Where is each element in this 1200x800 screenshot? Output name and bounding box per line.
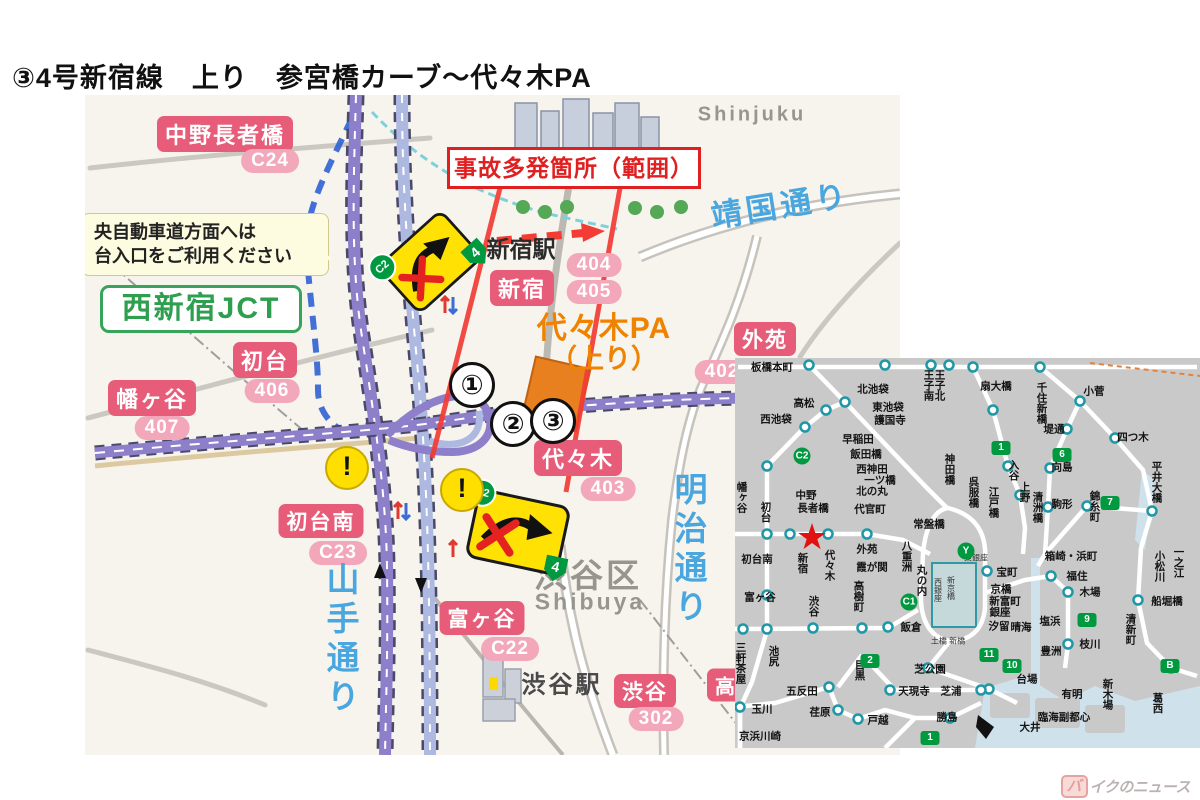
inset-station-北池袋: 北池袋	[857, 384, 889, 395]
inset-station-錦糸町: 錦糸町	[1088, 490, 1099, 522]
inset-route-badge-11: 11	[980, 648, 999, 662]
inset-station-江戸橋: 江戸橋	[987, 486, 998, 518]
route-note-callout: 央自動車道方面へは 台入口をご利用ください	[85, 213, 329, 276]
inset-station-芝浦: 芝浦	[941, 686, 962, 697]
map-label-新宿: 新宿	[490, 270, 554, 306]
map-label-403: 403	[581, 477, 636, 501]
inset-station-外苑: 外苑	[857, 544, 878, 555]
inset-station-五反田: 五反田	[786, 686, 818, 697]
inset-station-塩浜: 塩浜	[1040, 616, 1061, 627]
inset-station-高松: 高松	[794, 398, 815, 409]
inset-station-葛西: 葛西	[1151, 693, 1162, 714]
map-label-405: 405	[567, 280, 622, 304]
map-label-初台: 初台	[233, 342, 297, 378]
warning-exclamation-icon: !	[325, 446, 369, 490]
map-label-C24: C24	[241, 149, 299, 173]
inset-route-badge-2: 2	[861, 654, 880, 668]
inset-station-王子南: 王子南	[922, 369, 933, 401]
map-label-新宿駅: 新宿駅	[487, 230, 556, 264]
map-label-明治通り: 明治通り	[664, 472, 712, 628]
inset-station-宝町: 宝町	[997, 567, 1018, 578]
inset-station-護国寺: 護国寺	[874, 415, 906, 426]
map-label-406: 406	[245, 379, 300, 403]
map-label-山手通り: 山手通り	[316, 562, 364, 718]
map-label-Shibuya: Shibuya	[535, 589, 645, 616]
inset-station-有明: 有明	[1062, 689, 1083, 700]
inset-station-初台: 初台	[759, 502, 770, 523]
inset-station-八重洲: 八重洲	[900, 540, 911, 572]
inset-station-箱崎・浜町: 箱崎・浜町	[1045, 551, 1098, 562]
inset-station-小松川: 小松川	[1153, 550, 1164, 582]
inset-route-badge-B: B	[1161, 659, 1180, 673]
watermark-text: イクのニュース	[1090, 776, 1190, 797]
inset-station-早稲田: 早稲田	[842, 434, 874, 445]
location-star-icon: ★	[796, 519, 828, 555]
inset-station-北の丸: 北の丸	[856, 486, 888, 497]
inset-station-飯倉: 飯倉	[901, 622, 922, 633]
pa-label-line1: 代々木PA	[518, 313, 690, 345]
inset-route-badge-9: 9	[1078, 613, 1097, 627]
inset-route-badge-1: 1	[921, 731, 940, 745]
map-label-幡ヶ谷: 幡ヶ谷	[108, 380, 196, 416]
inset-station-天現寺: 天現寺	[898, 686, 930, 697]
inset-station-木場: 木場	[1080, 587, 1101, 598]
inset-station-池尻: 池尻	[767, 646, 778, 667]
inset-station-汐留: 汐留	[989, 621, 1010, 632]
inset-station-戸越: 戸越	[868, 715, 889, 726]
inset-route-badge-Y: Y	[958, 543, 975, 560]
inset-minor-新京橋: 新京橋	[946, 576, 957, 600]
inset-network-map: 板橋本町北池袋東池袋護国寺高松西池袋早稲田飯田橋西神田一ツ橋北の丸代官町常盤橋八…	[735, 358, 1200, 748]
inset-station-扇大橋: 扇大橋	[980, 381, 1012, 392]
circled-marker-①: ①	[449, 362, 495, 408]
map-label-302: 302	[629, 707, 684, 731]
inset-station-京浜川崎: 京浜川崎	[739, 731, 781, 742]
inset-station-駒形: 駒形	[1052, 499, 1073, 510]
inset-station-台場: 台場	[1017, 674, 1038, 685]
building-window	[489, 677, 498, 690]
inset-minor-土橋 新橋: 土橋 新橋	[931, 636, 965, 647]
inset-route-badge-7: 7	[1101, 496, 1120, 510]
map-label-外苑: 外苑	[734, 322, 796, 356]
inset-station-四つ木: 四つ木	[1117, 432, 1149, 443]
inset-route-badge-1: 1	[992, 441, 1011, 455]
inset-station-西池袋: 西池袋	[760, 414, 792, 425]
page: ③4号新宿線 上り 参宮橋カーブ～代々木PA	[0, 0, 1200, 800]
map-label-Shinjuku: Shinjuku	[698, 104, 806, 127]
inset-station-銀座: 銀座	[990, 607, 1011, 618]
inset-route-badge-10: 10	[1003, 659, 1022, 673]
inset-route-badge-C2: C2	[794, 448, 811, 465]
watermark-badge: バ	[1061, 775, 1088, 798]
inset-station-平井大橋: 平井大橋	[1150, 461, 1161, 503]
map-label-渋谷: 渋谷	[614, 674, 676, 708]
nishi-shinjuku-jct-label: 西新宿JCT	[100, 285, 302, 333]
circled-marker-②: ②	[490, 401, 536, 447]
inset-station-清洲橋: 清洲橋	[1031, 491, 1042, 523]
inset-station-大井: 大井	[1020, 722, 1041, 733]
inset-station-板橋本町: 板橋本町	[751, 362, 793, 373]
map-label-初台南: 初台南	[279, 504, 364, 538]
map-label-404: 404	[567, 253, 622, 277]
inset-station-臨海副都心: 臨海副都心	[1038, 712, 1091, 723]
inset-station-入谷: 入谷	[1007, 460, 1018, 481]
map-label-富ヶ谷: 富ヶ谷	[440, 601, 525, 635]
site-watermark: バ イクのニュース	[1061, 775, 1190, 798]
inset-station-飯田橋: 飯田橋	[850, 449, 882, 460]
inset-station-船堀橋: 船堀橋	[1151, 596, 1183, 607]
inset-station-一之江: 一之江	[1172, 546, 1183, 578]
inset-station-枝川: 枝川	[1080, 639, 1101, 650]
inset-route-badge-C1: C1	[901, 594, 918, 611]
inset-station-王子北: 王子北	[933, 369, 944, 401]
inset-station-勝島: 勝島	[937, 712, 958, 723]
inset-station-荏原: 荏原	[810, 707, 831, 718]
inset-station-代官町: 代官町	[854, 504, 886, 515]
inset-station-向島: 向島	[1052, 462, 1073, 473]
inset-station-三軒茶屋: 三軒茶屋	[735, 642, 746, 684]
hazard-zone-label: 事故多発箇所（範囲）	[447, 147, 701, 189]
inset-station-中野: 中野	[796, 490, 817, 501]
note-line-1: 央自動車道方面へは	[94, 220, 320, 244]
map-label-C22: C22	[481, 637, 539, 661]
inset-station-晴海: 晴海	[1011, 622, 1032, 633]
inset-station-常盤橋: 常盤橋	[913, 519, 945, 530]
inset-station-玉川: 玉川	[752, 704, 773, 715]
inset-station-富ヶ谷: 富ヶ谷	[744, 592, 776, 603]
inset-station-千住新橋: 千住新橋	[1035, 382, 1046, 424]
inset-station-渋谷: 渋谷	[807, 596, 818, 617]
pa-label-line2: （上り）	[518, 345, 690, 373]
inset-station-上野: 上野	[1018, 482, 1029, 503]
map-label-渋谷駅: 渋谷駅	[522, 665, 603, 700]
map-label-中野長者橋: 中野長者橋	[157, 116, 293, 152]
inset-station-堤通: 堤通	[1044, 424, 1065, 435]
page-title: ③4号新宿線 上り 参宮橋カーブ～代々木PA	[12, 56, 592, 95]
inset-station-神田橋: 神田橋	[943, 453, 954, 485]
inset-station-霞が関: 霞が関	[856, 562, 888, 573]
circled-marker-③: ③	[530, 398, 576, 444]
inset-minor-西銀座: 西銀座	[933, 578, 944, 602]
inset-station-豊洲: 豊洲	[1041, 646, 1062, 657]
inset-station-清新町: 清新町	[1124, 613, 1135, 645]
inset-station-新木場: 新木場	[1101, 678, 1112, 710]
inset-station-長者橋: 長者橋	[797, 503, 829, 514]
inset-station-芝公園: 芝公園	[914, 664, 946, 675]
inset-route-badge-6: 6	[1053, 448, 1072, 462]
inset-station-福住: 福住	[1067, 571, 1088, 582]
inset-station-丸の内: 丸の内	[915, 564, 926, 596]
inset-station-小菅: 小菅	[1084, 386, 1105, 397]
yoyogi-pa-label: 代々木PA （上り）	[518, 313, 690, 373]
inset-station-呉服橋: 呉服橋	[967, 476, 978, 508]
inset-station-初台南: 初台南	[741, 554, 773, 565]
note-line-2: 台入口をご利用ください	[94, 244, 320, 268]
inset-station-幡ヶ谷: 幡ヶ谷	[735, 481, 746, 513]
map-label-代々木: 代々木	[534, 440, 622, 476]
inset-station-京橋: 京橋	[991, 584, 1012, 595]
inset-station-東池袋: 東池袋	[872, 402, 904, 413]
warning-exclamation-icon: !	[440, 468, 484, 512]
inset-station-高樹町: 高樹町	[852, 580, 863, 612]
map-label-407: 407	[135, 416, 190, 440]
